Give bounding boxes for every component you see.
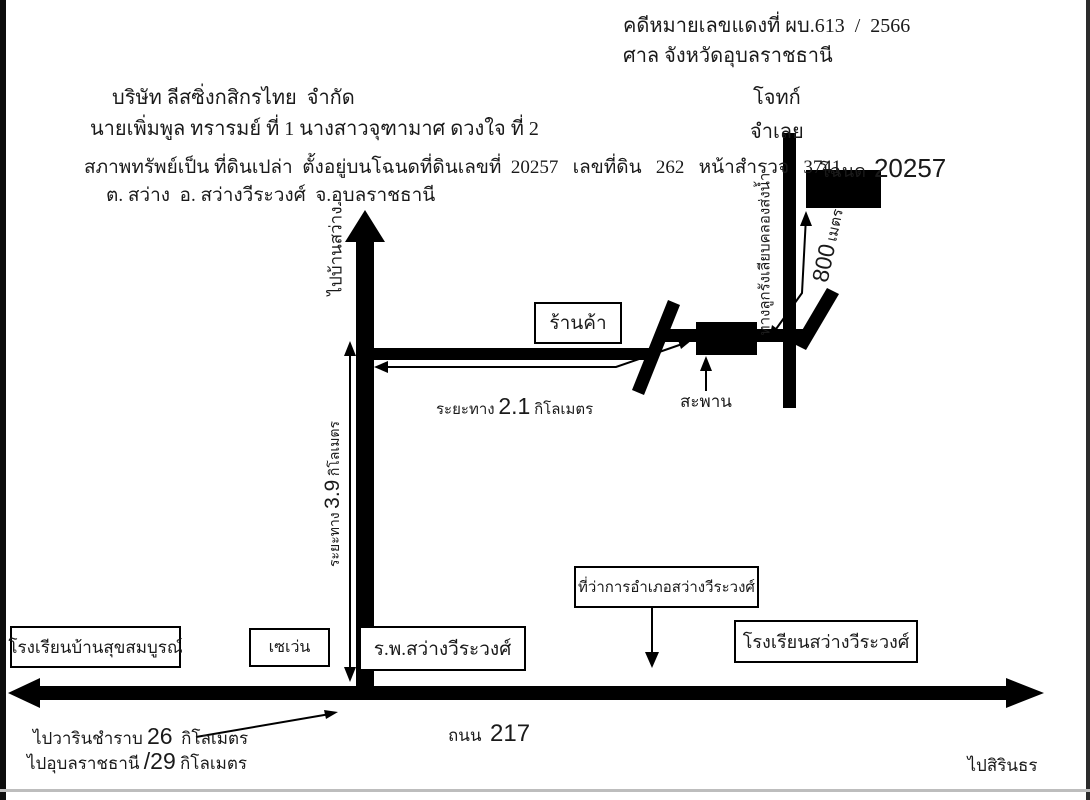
distance-2-1-value: 2.1 bbox=[498, 393, 530, 419]
to-ubon-note: ไปอุบลราชธานี /29 กิโลเมตร bbox=[11, 727, 247, 796]
distance-2-1-arrowhead-left bbox=[374, 361, 388, 373]
court-map-document: คดีหมายเลขแดงที่ ผบ.613 / 2566 ศาล จังหว… bbox=[0, 0, 1090, 800]
plaintiff-role: โจทก์ bbox=[753, 86, 801, 111]
distance-3-9-arrowhead-bottom bbox=[344, 667, 356, 682]
deed-number-label: โฉนด20257 bbox=[804, 132, 946, 205]
distance-3-9-unit: กิโลเมตร bbox=[328, 421, 343, 480]
seven-eleven-box: เซเว่น bbox=[249, 628, 330, 667]
distance-3-9-value: 3.9 bbox=[321, 480, 344, 509]
distance-3-9-arrowhead-top bbox=[344, 341, 356, 356]
bridge-pointer-arrowhead bbox=[700, 356, 712, 371]
hospital-label: ร.พ.สว่างวีระวงศ์ bbox=[374, 634, 512, 664]
deed-prefix: โฉนด bbox=[820, 161, 866, 181]
canal-road-label: ทางลูกรังเลียบคลองส่งน้ำ bbox=[757, 173, 776, 336]
defendant-names: นายเพิ่มพูล ทรารมย์ ที่ 1 นางสาวจุฑามาศ … bbox=[90, 117, 539, 142]
case-number: คดีหมายเลขแดงที่ ผบ.613 / 2566 bbox=[623, 14, 910, 39]
to-ubon-unit: กิโลเมตร bbox=[176, 754, 247, 773]
to-ban-sawang-label: ไปบ้านสว่าง bbox=[325, 206, 346, 295]
warin-note-pointer-arrowhead bbox=[324, 710, 338, 719]
property-description-line1: สภาพทรัพย์เป็น ที่ดินเปล่า ตั้งอยู่บนโฉน… bbox=[84, 156, 841, 180]
hospital-box: ร.พ.สว่างวีระวงศ์ bbox=[359, 626, 526, 671]
distance-2-1-label: ระยะทาง 2.1 กิโลเมตร bbox=[420, 372, 593, 441]
court-name: ศาล จังหวัดอุบลราชธานี bbox=[623, 44, 833, 69]
distance-3-9-prefix: ระยะทาง bbox=[328, 509, 343, 567]
east-directions: ไปสิรินธร ไปพิบูลมังสาหาร bbox=[935, 712, 1070, 800]
school-sawang-box: โรงเรียนสว่างวีระวงศ์ bbox=[734, 620, 918, 663]
distance-2-1-prefix: ระยะทาง bbox=[436, 402, 498, 418]
bridge-label: สะพาน bbox=[668, 391, 744, 412]
to-sirindhorn-label: ไปสิรินธร bbox=[935, 755, 1070, 776]
district-office-label: ที่ว่าการอำเภอสว่างวีระวงศ์ bbox=[578, 575, 755, 599]
district-office-box: ที่ว่าการอำเภอสว่างวีระวงศ์ bbox=[574, 566, 759, 608]
district-office-pointer-arrowhead bbox=[645, 652, 659, 668]
distance-800-unit: เมตร bbox=[824, 208, 847, 247]
distance-2-1-unit: กิโลเมตร bbox=[530, 402, 593, 418]
road-217-label: ถนน 217 bbox=[432, 699, 530, 769]
road-217-number: 217 bbox=[490, 720, 530, 747]
bridge-rect bbox=[696, 322, 757, 355]
school-sawang-label: โรงเรียนสว่างวีระวงศ์ bbox=[743, 627, 910, 656]
shop-label: ร้านค้า bbox=[549, 308, 606, 338]
to-ubon-distance: /29 bbox=[144, 748, 176, 774]
road-217-prefix: ถนน bbox=[448, 726, 490, 745]
access-road-west bbox=[374, 348, 658, 360]
defendant-role: จำเลย bbox=[750, 120, 804, 145]
distance-2-1-arrowhead-right bbox=[678, 340, 692, 349]
distance-800-value: 800 bbox=[807, 242, 840, 285]
plaintiff-name: บริษัท ลีสซิ่งกสิกรไทย จำกัด bbox=[112, 86, 355, 111]
school-suksomboon-label: โรงเรียนบ้านสุขสมบูรณ์ bbox=[8, 634, 182, 661]
school-suksomboon-box: โรงเรียนบ้านสุขสมบูรณ์ bbox=[10, 626, 181, 668]
property-description-line2: ต. สว่าง อ. สว่างวีระวงศ์ จ.อุบลราชธานี bbox=[106, 184, 435, 208]
seven-eleven-label: เซเว่น bbox=[269, 635, 311, 660]
shop-box: ร้านค้า bbox=[534, 302, 622, 344]
to-ubon-prefix: ไปอุบลราชธานี bbox=[27, 754, 144, 773]
deed-number: 20257 bbox=[874, 153, 946, 183]
distance-3-9-label: ระยะทาง 3.9 กิโลเมตร bbox=[300, 421, 366, 583]
